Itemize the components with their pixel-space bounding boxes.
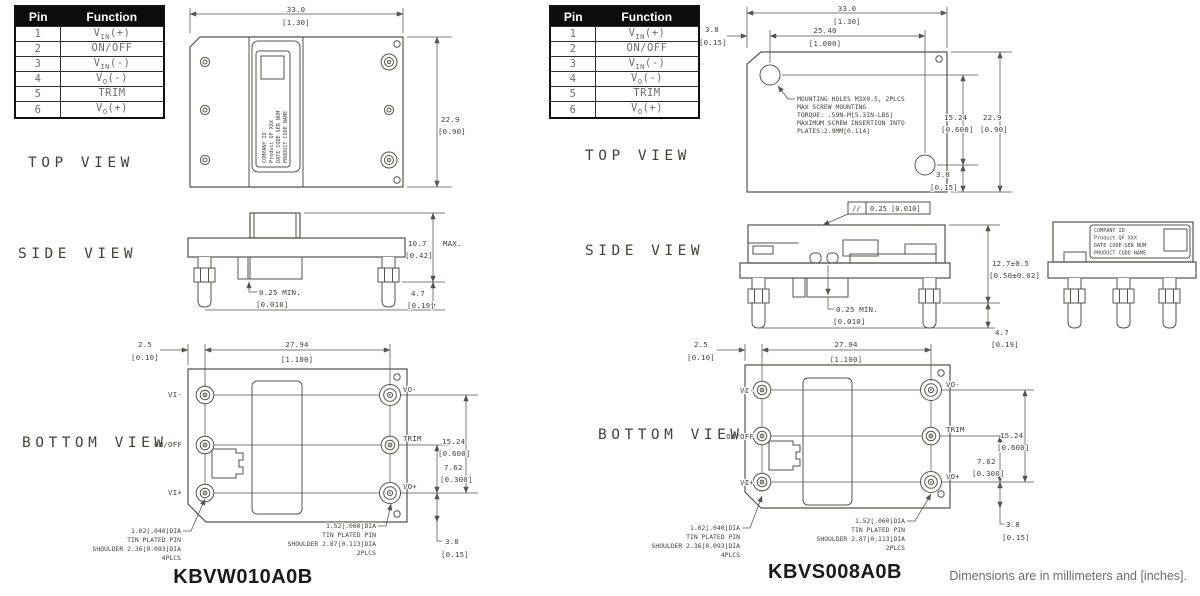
note-small-pin: SHOULDER 2.36[0.093]DIA [93, 545, 182, 553]
dim-edge-in: [0.15] [441, 550, 469, 559]
note-large-pin: TIN PLATED PIN [851, 526, 905, 534]
pin [1159, 278, 1180, 328]
table-row: 5TRIM [15, 87, 164, 102]
logo-box [1164, 229, 1187, 251]
dim-standoff-mm: 0.25 MIN. [836, 305, 878, 314]
pin [381, 152, 397, 168]
table-row: 6VO(+) [15, 102, 164, 118]
corner-hole [938, 370, 944, 376]
pin-number-cell: 1 [550, 27, 596, 42]
pin-number-cell: 6 [15, 102, 61, 118]
dim-holes-in: [1.000] [809, 39, 842, 48]
function-header: Function [596, 6, 700, 27]
pin [384, 105, 393, 114]
dim-height-mm: 12.7±0.5 [992, 259, 1029, 268]
pin [748, 278, 769, 328]
corner-hole [394, 374, 400, 380]
dim-span-mm: 15.24 [442, 437, 466, 446]
pin-header: Pin [15, 6, 61, 27]
pin-label: VO+ [403, 482, 417, 491]
corner-hole [936, 56, 942, 62]
part-number-left: KBVW010A0B [148, 566, 338, 589]
pin-label: VI- [168, 390, 182, 399]
table-row: 3VIN(-) [550, 57, 699, 72]
note-small-pin: 4PLCS [721, 551, 740, 559]
module-outline [745, 365, 950, 508]
left-side-view: 0.25 MIN. [0.010] 10.7 MAX. [0.42] 4.7 [… [188, 213, 462, 310]
right-top-view: MOUNTING HOLES M3X0.5, 2PLCS MAX SCREW M… [699, 4, 1012, 192]
dim-height-in: [0.90] [438, 127, 466, 136]
dim-standoff-mm: 0.25 MIN. [259, 288, 301, 297]
logo-box [261, 56, 284, 79]
note-small-pin: 1.02[.040]DIA [690, 524, 740, 532]
pin [194, 257, 215, 307]
pin-vo-plus [380, 483, 401, 504]
pin-vi-minus [753, 381, 771, 399]
left-bottom-view: VI- ON/OFF VI+ VO- TRIM VO+ 2.5 [0.10] 2… [93, 340, 479, 562]
pin-header: Pin [550, 6, 596, 27]
dim-hole-offset-mm: 3.8 [705, 25, 719, 34]
dim-half-mm: 7.62 [444, 463, 463, 472]
connector-outline [212, 449, 243, 478]
label-line4: PRODUCT CODE NAME [1094, 251, 1146, 257]
pin-function-cell: VO(+) [61, 102, 165, 118]
pin-number-cell: 3 [15, 57, 61, 72]
flatness-symbol: // [852, 205, 860, 213]
pin-number-cell: 1 [15, 27, 61, 42]
pin-function-cell: ON/OFF [61, 42, 165, 57]
right-front-view: COMPANY ID Product QF XXX DATE CODE-SER … [1048, 222, 1196, 328]
dim-holes-mm: 25.40 [813, 26, 836, 35]
pin-label: VI- [740, 386, 754, 395]
dim-edge-in: [0.15] [1002, 533, 1030, 542]
left-bottom-view-label: BOTTOM VIEW [22, 435, 168, 451]
pin-number-cell: 5 [15, 87, 61, 102]
note-large-pin: SHOULDER 2.87[0.113]DIA [817, 535, 906, 543]
pin [378, 257, 399, 307]
flatness-value: 0.25 [0.010] [870, 205, 921, 213]
dim-half-mm: 7.62 [977, 457, 996, 466]
pin-function-cell: VO(-) [596, 72, 700, 87]
dim-offset-in: [0.10] [131, 353, 159, 362]
note-small-pin: 4PLCS [162, 554, 181, 562]
pin-label: VO+ [946, 472, 960, 481]
mounting-hole [915, 155, 935, 175]
dim-offset-mm: 2.5 [694, 340, 708, 349]
pin-function-cell: VIN(+) [61, 27, 165, 42]
note-large-pin: 1.52[.060]DIA [326, 522, 376, 530]
dim-hole-span-mm: 15.24 [944, 113, 968, 122]
label-line4: PRODUCT CODE NAME [283, 111, 289, 163]
dim-height-max: MAX. [443, 239, 462, 248]
pin [381, 54, 397, 70]
dim-height-mm: 22.9 [441, 115, 460, 124]
board [188, 238, 405, 257]
dim-span-mm: 15.24 [1000, 431, 1024, 440]
dim-width-in: [1.30] [833, 17, 861, 26]
pin-function-cell: TRIM [596, 87, 700, 102]
table-header-row: Pin Function [15, 6, 164, 27]
pin-label: TRIM [403, 434, 422, 443]
dim-height-mm: 22.9 [983, 113, 1002, 122]
pin-function-cell: TRIM [61, 87, 165, 102]
dim-span-in: [0.600] [438, 449, 471, 458]
pin-vi-minus [196, 386, 214, 404]
dim-standoff-in: [0.010] [833, 317, 866, 326]
label-line1: COMPANY ID [262, 132, 268, 163]
pin-number-cell: 6 [550, 102, 596, 118]
dim-edge-mm: 3.8 [445, 537, 459, 546]
dim-pitch-mm: 27.94 [834, 340, 858, 349]
pin-onoff [196, 436, 214, 454]
dim-span-in: [0.600] [997, 443, 1030, 452]
pin [919, 278, 940, 328]
corner-hole [394, 511, 400, 517]
dim-hole-span-in: [0.600] [941, 125, 974, 134]
component-body [250, 213, 300, 238]
module-outline [190, 37, 403, 187]
baseplate-flange [740, 263, 950, 278]
dim-edge-mm: 3.8 [1006, 520, 1020, 529]
dim-height-in: [0.42] [405, 251, 433, 260]
connector-outline [769, 441, 800, 470]
module-outline [188, 369, 407, 522]
pin-label: TRIM [946, 425, 965, 434]
dim-height-in: [0.50±0.02] [989, 271, 1040, 280]
pin-number-cell: 4 [550, 72, 596, 87]
pin-function-cell: VIN(-) [61, 57, 165, 72]
left-side-view-label: SIDE VIEW [18, 246, 137, 262]
dim-standoff-in: [0.010] [256, 300, 289, 309]
corner-hole [938, 491, 944, 497]
left-top-view: COMPANY ID Product QF XXX DATE CODE-SER … [190, 5, 466, 187]
pin [1113, 278, 1134, 328]
pin [1064, 278, 1085, 328]
mounting-note: MAX SCREW MOUNTING [797, 103, 866, 111]
pin-trim [381, 436, 399, 454]
pin [200, 57, 209, 66]
mounting-note: PLATES:2.9MM[0.114] [797, 127, 870, 135]
units-note: Dimensions are in millimeters and [inche… [949, 569, 1187, 583]
pin-number-cell: 3 [550, 57, 596, 72]
pin [200, 155, 209, 164]
pin-function-cell: VIN(-) [596, 57, 700, 72]
pin-function-cell: VO(+) [596, 102, 700, 118]
note-large-pin: TIN PLATED PIN [322, 531, 376, 539]
label-line2: Product QF XXX [1094, 236, 1138, 242]
right-top-view-label: TOP VIEW [585, 148, 691, 164]
dim-height-in: [0.90] [980, 125, 1008, 134]
table-header-row: Pin Function [550, 6, 699, 27]
right-bottom-view: VI- ON/OFF VI+ VO- TRIM VO+ 2.5 [0.10] 2… [652, 340, 1035, 559]
dim-width-mm: 33.0 [838, 4, 857, 13]
pin-label: VI+ [168, 488, 182, 497]
table-row: 1VIN(+) [550, 27, 699, 42]
pin-function-cell: VO(-) [61, 72, 165, 87]
mechanical-drawing-page: COMPANY ID Product QF XXX DATE CODE-SER … [0, 0, 1200, 596]
pin-function-cell: VIN(+) [596, 27, 700, 42]
pin-label: VO- [403, 385, 417, 394]
right-side-view-label: SIDE VIEW [585, 243, 704, 259]
table-row: 4VO(-) [15, 72, 164, 87]
pin-number-cell: 5 [550, 87, 596, 102]
label-line3: DATE CODE-SER NUM [276, 111, 282, 163]
dim-half-in: [0.300] [440, 475, 473, 484]
table-row: 6VO(+) [550, 102, 699, 118]
dim-pitch-mm: 27.94 [285, 340, 309, 349]
table-row: 2ON/OFF [15, 42, 164, 57]
pin-trim [922, 427, 940, 445]
dim-pin-mm: 4.7 [995, 328, 1009, 337]
table-row: 2ON/OFF [550, 42, 699, 57]
pin-onoff [753, 427, 771, 445]
right-side-view: // 0.25 [0.010] 0.25 MIN. [0.010] 12.7±0… [740, 202, 1040, 349]
dim-half-in: [0.300] [972, 469, 1005, 478]
pin-vo-plus [921, 472, 942, 493]
label-line3: DATE CODE-SER NUM [1094, 243, 1146, 249]
pin-number-cell: 2 [550, 42, 596, 57]
pin-function-table-left: Pin Function 1VIN(+) 2ON/OFF 3VIN(-) 4VO… [14, 5, 165, 119]
pin-number-cell: 4 [15, 72, 61, 87]
note-large-pin: 2PLCS [886, 544, 905, 552]
dim-edge-mm: 3.8 [936, 170, 950, 179]
dim-pitch-in: [1.100] [830, 355, 863, 364]
dim-hole-offset-in: [0.15] [699, 38, 727, 47]
mounting-note: MOUNTING HOLES M3X0.5, 2PLCS [797, 95, 905, 103]
pin-function-table-right: Pin Function 1VIN(+) 2ON/OFF 3VIN(-) 4VO… [549, 5, 700, 119]
baseplate-flange [1048, 262, 1196, 278]
dim-offset-in: [0.10] [687, 353, 715, 362]
label-line1: COMPANY ID [1094, 228, 1125, 234]
dim-pitch-in: [1.100] [281, 355, 314, 364]
note-small-pin: 1.02[.040]DIA [131, 527, 181, 535]
pin-vi-plus [753, 473, 771, 491]
center-recess [803, 378, 852, 505]
function-header: Function [61, 6, 165, 27]
pin-vo-minus [921, 380, 942, 401]
corner-hole [394, 177, 400, 183]
left-top-view-label: TOP VIEW [28, 155, 134, 171]
dim-edge-in: [0.15] [930, 183, 958, 192]
note-large-pin: 2PLCS [357, 549, 376, 557]
pin-vo-minus [380, 385, 401, 406]
dim-width-mm: 33.0 [287, 5, 306, 14]
dim-offset-mm: 2.5 [138, 340, 152, 349]
pin-number-cell: 2 [15, 42, 61, 57]
table-row: 3VIN(-) [15, 57, 164, 72]
mounting-note: MAXIMUM SCREW INSERTION INTO [797, 119, 905, 127]
pin-label: VI+ [740, 478, 754, 487]
note-small-pin: SHOULDER 2.36[0.093]DIA [652, 542, 741, 550]
corner-hole [394, 41, 400, 47]
center-recess [252, 381, 302, 514]
dim-pin-mm: 4.7 [411, 289, 425, 298]
table-row: 5TRIM [550, 87, 699, 102]
dim-height-mm: 10.7 [408, 239, 427, 248]
mounting-note: TORQUE: .59N-M[5.3IN-LBS] [797, 111, 893, 119]
dim-pin-in: [0.19] [407, 301, 435, 310]
pin-function-cell: ON/OFF [596, 42, 700, 57]
dim-pin-in: [0.19] [991, 340, 1019, 349]
pin-label: VO- [946, 380, 960, 389]
note-large-pin: 1.52[.060]DIA [855, 517, 905, 525]
note-large-pin: SHOULDER 2.87[0.113]DIA [288, 540, 377, 548]
pin [200, 105, 209, 114]
table-row: 1VIN(+) [15, 27, 164, 42]
mounting-hole [760, 65, 780, 85]
right-bottom-view-label: BOTTOM VIEW [598, 427, 744, 443]
note-small-pin: TIN PLATED PIN [127, 536, 181, 544]
part-number-right: KBVS008A0B [740, 561, 930, 584]
table-row: 4VO(-) [550, 72, 699, 87]
dim-width-in: [1.30] [282, 18, 310, 27]
label-line2: Product QF XXX [269, 119, 275, 163]
note-small-pin: TIN PLATED PIN [686, 533, 740, 541]
